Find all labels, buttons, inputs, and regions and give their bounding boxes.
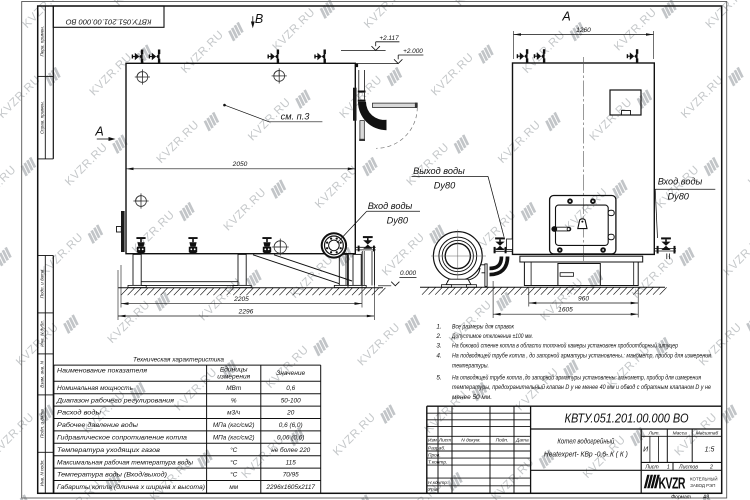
svg-text:Выход воды: Выход воды [413, 166, 465, 176]
svg-text:Изм: Изм [428, 437, 438, 443]
svg-text:Лист: Лист [438, 437, 451, 443]
svg-text:2050: 2050 [232, 161, 248, 168]
svg-text:На подводящей трубе котла ,: На подводящей трубе котла , до запорной … [452, 352, 711, 360]
svg-text:Подп. и дата: Подп. и дата [40, 269, 45, 298]
svg-text:Дата: Дата [515, 437, 529, 443]
svg-text:Разраб.: Разраб. [428, 445, 445, 451]
svg-text:Dy80: Dy80 [667, 192, 689, 202]
svg-text:температуры.: температуры. [452, 363, 489, 370]
svg-text:2205: 2205 [233, 296, 249, 303]
svg-text:Утв.: Утв. [428, 487, 439, 493]
svg-text:Расход воды: Расход воды [57, 409, 101, 417]
svg-text:1:5: 1:5 [705, 447, 715, 454]
svg-text:1: 1 [667, 464, 670, 470]
svg-text:Наименование показателя: Наименование показателя [57, 367, 148, 374]
svg-text:измерения: измерения [217, 374, 250, 381]
svg-text:1605: 1605 [558, 307, 573, 314]
svg-text:мм: мм [229, 484, 238, 491]
svg-text:А3: А3 [702, 494, 709, 500]
svg-text:Т.контр.: Т.контр. [428, 459, 447, 465]
svg-text:Вход воды: Вход воды [368, 201, 413, 211]
svg-text:0,06 (0,6): 0,06 (0,6) [277, 435, 304, 442]
svg-text:2: 2 [709, 464, 713, 470]
svg-text:Рабочее давление воды: Рабочее давление воды [57, 421, 138, 429]
svg-text:Инв. N дубл.: Инв. N дубл. [40, 320, 45, 347]
svg-text:Максимальная рабочая температу: Максимальная рабочая температура воды [57, 458, 193, 466]
svg-text:°С: °С [230, 471, 238, 479]
svg-text:Dy80: Dy80 [434, 181, 456, 191]
svg-text:А: А [94, 125, 103, 139]
svg-text:МПа (кгс/см2): МПа (кгс/см2) [213, 435, 255, 442]
svg-text:Гидравлическое сопротивление к: Гидравлическое сопротивление котла [57, 434, 187, 442]
svg-text:0,6 (6,0): 0,6 (6,0) [279, 422, 303, 429]
svg-text:Техническая характеристика: Техническая характеристика [133, 356, 224, 363]
svg-text:N докум.: N докум. [461, 437, 480, 443]
svg-text:Взам. инв. N: Взам. инв. N [40, 360, 45, 387]
svg-text:ЗАВОД РЭП: ЗАВОД РЭП [690, 483, 715, 488]
svg-text:Значение: Значение [276, 370, 305, 377]
svg-text:°С: °С [230, 458, 238, 466]
svg-text:Температура уходящих газов: Температура уходящих газов [57, 446, 161, 454]
svg-text:КОТЕЛЬНЫЙ: КОТЕЛЬНЫЙ [690, 476, 718, 481]
svg-text:Подп. и дата: Подп. и дата [40, 409, 45, 438]
svg-text:КВТУ.051.201.00.000 ВО: КВТУ.051.201.00.000 ВО [66, 18, 152, 27]
svg-text:4.: 4. [436, 353, 441, 360]
svg-text:Н.контр.: Н.контр. [428, 480, 448, 486]
svg-text:Габариты котла (длинна х ширин: Габариты котла (длинна х ширина х высота… [57, 483, 205, 491]
svg-text:115: 115 [286, 459, 297, 466]
svg-text:В: В [255, 12, 263, 26]
svg-text:Все размеры для справок: Все размеры для справок [452, 323, 515, 331]
svg-text:Перв. примен.: Перв. примен. [40, 26, 45, 57]
svg-text:Лист: Лист [644, 464, 659, 470]
svg-text:МВт: МВт [226, 385, 242, 392]
svg-text:Диапазон рабочего регулировани: Диапазон рабочего регулирования [56, 396, 175, 404]
svg-text:20: 20 [286, 410, 295, 417]
svg-text:Инв. N подл.: Инв. N подл. [40, 459, 45, 486]
svg-text:Dy80: Dy80 [387, 215, 409, 225]
svg-text:см. п.3: см. п.3 [281, 111, 311, 121]
svg-text:3.: 3. [436, 343, 441, 350]
svg-text:Лит.: Лит. [648, 430, 660, 436]
svg-text:Формат: Формат [671, 494, 691, 500]
svg-text:Единицы: Единицы [220, 365, 248, 373]
svg-text:Котел водогрейный: Котел водогрейный [557, 438, 614, 446]
svg-text:температуры, предохранительный: температуры, предохранительный клапан D … [452, 383, 711, 391]
svg-text:На отводящей трубе котла ,до з: На отводящей трубе котла ,до запорной ар… [452, 373, 701, 381]
svg-text:%: % [231, 397, 237, 404]
svg-text:5.: 5. [436, 374, 441, 381]
svg-text:70/95: 70/95 [283, 472, 299, 479]
svg-text:Допустимое отклонение ±100 мм: Допустимое отклонение ±100 мм. [451, 333, 533, 340]
svg-text:Листов: Листов [678, 464, 698, 470]
svg-text:Масса: Масса [673, 430, 688, 436]
svg-text:1260: 1260 [576, 27, 591, 34]
svg-text:2296: 2296 [238, 308, 254, 315]
svg-text:Справ. примен.: Справ. примен. [40, 101, 45, 134]
svg-text:На боковой стенке котла в обла: На боковой стенке котла в области топочн… [452, 342, 678, 350]
svg-text:менее 50 мм.: менее 50 мм. [452, 394, 492, 401]
svg-text:А: А [561, 10, 570, 24]
svg-text:Масштаб: Масштаб [696, 430, 719, 436]
svg-text:Heatexpert- КВр -0,6- К ( К ): Heatexpert- КВр -0,6- К ( К ) [544, 452, 628, 459]
svg-text:960: 960 [578, 295, 589, 302]
svg-text:50-100: 50-100 [281, 397, 301, 404]
svg-text:+2.117: +2.117 [379, 35, 399, 42]
svg-text:Вход воды: Вход воды [658, 176, 703, 186]
svg-text:Номинальная мощность: Номинальная мощность [57, 385, 134, 392]
svg-text:не более 220: не более 220 [271, 446, 310, 454]
svg-text:1.: 1. [436, 324, 441, 331]
svg-text:0.000: 0.000 [400, 270, 416, 277]
svg-text:КВТУ.051.201.00.000 ВО: КВТУ.051.201.00.000 ВО [565, 410, 689, 425]
svg-text:Подп.: Подп. [496, 437, 509, 443]
svg-text:МПа (кгс/см2): МПа (кгс/см2) [213, 422, 255, 429]
svg-text:KVZR: KVZR [659, 475, 686, 492]
svg-text:+2.000: +2.000 [403, 48, 423, 55]
svg-text:°С: °С [230, 446, 238, 454]
svg-text:Температура воды (Вход/выход): Температура воды (Вход/выход) [57, 471, 167, 479]
svg-text:м3/ч: м3/ч [227, 410, 241, 417]
svg-text:0,6: 0,6 [286, 385, 295, 392]
svg-text:Пров.: Пров. [428, 452, 441, 458]
svg-text:2.: 2. [435, 333, 441, 340]
svg-text:2296х1605х2117: 2296х1605х2117 [265, 484, 315, 491]
